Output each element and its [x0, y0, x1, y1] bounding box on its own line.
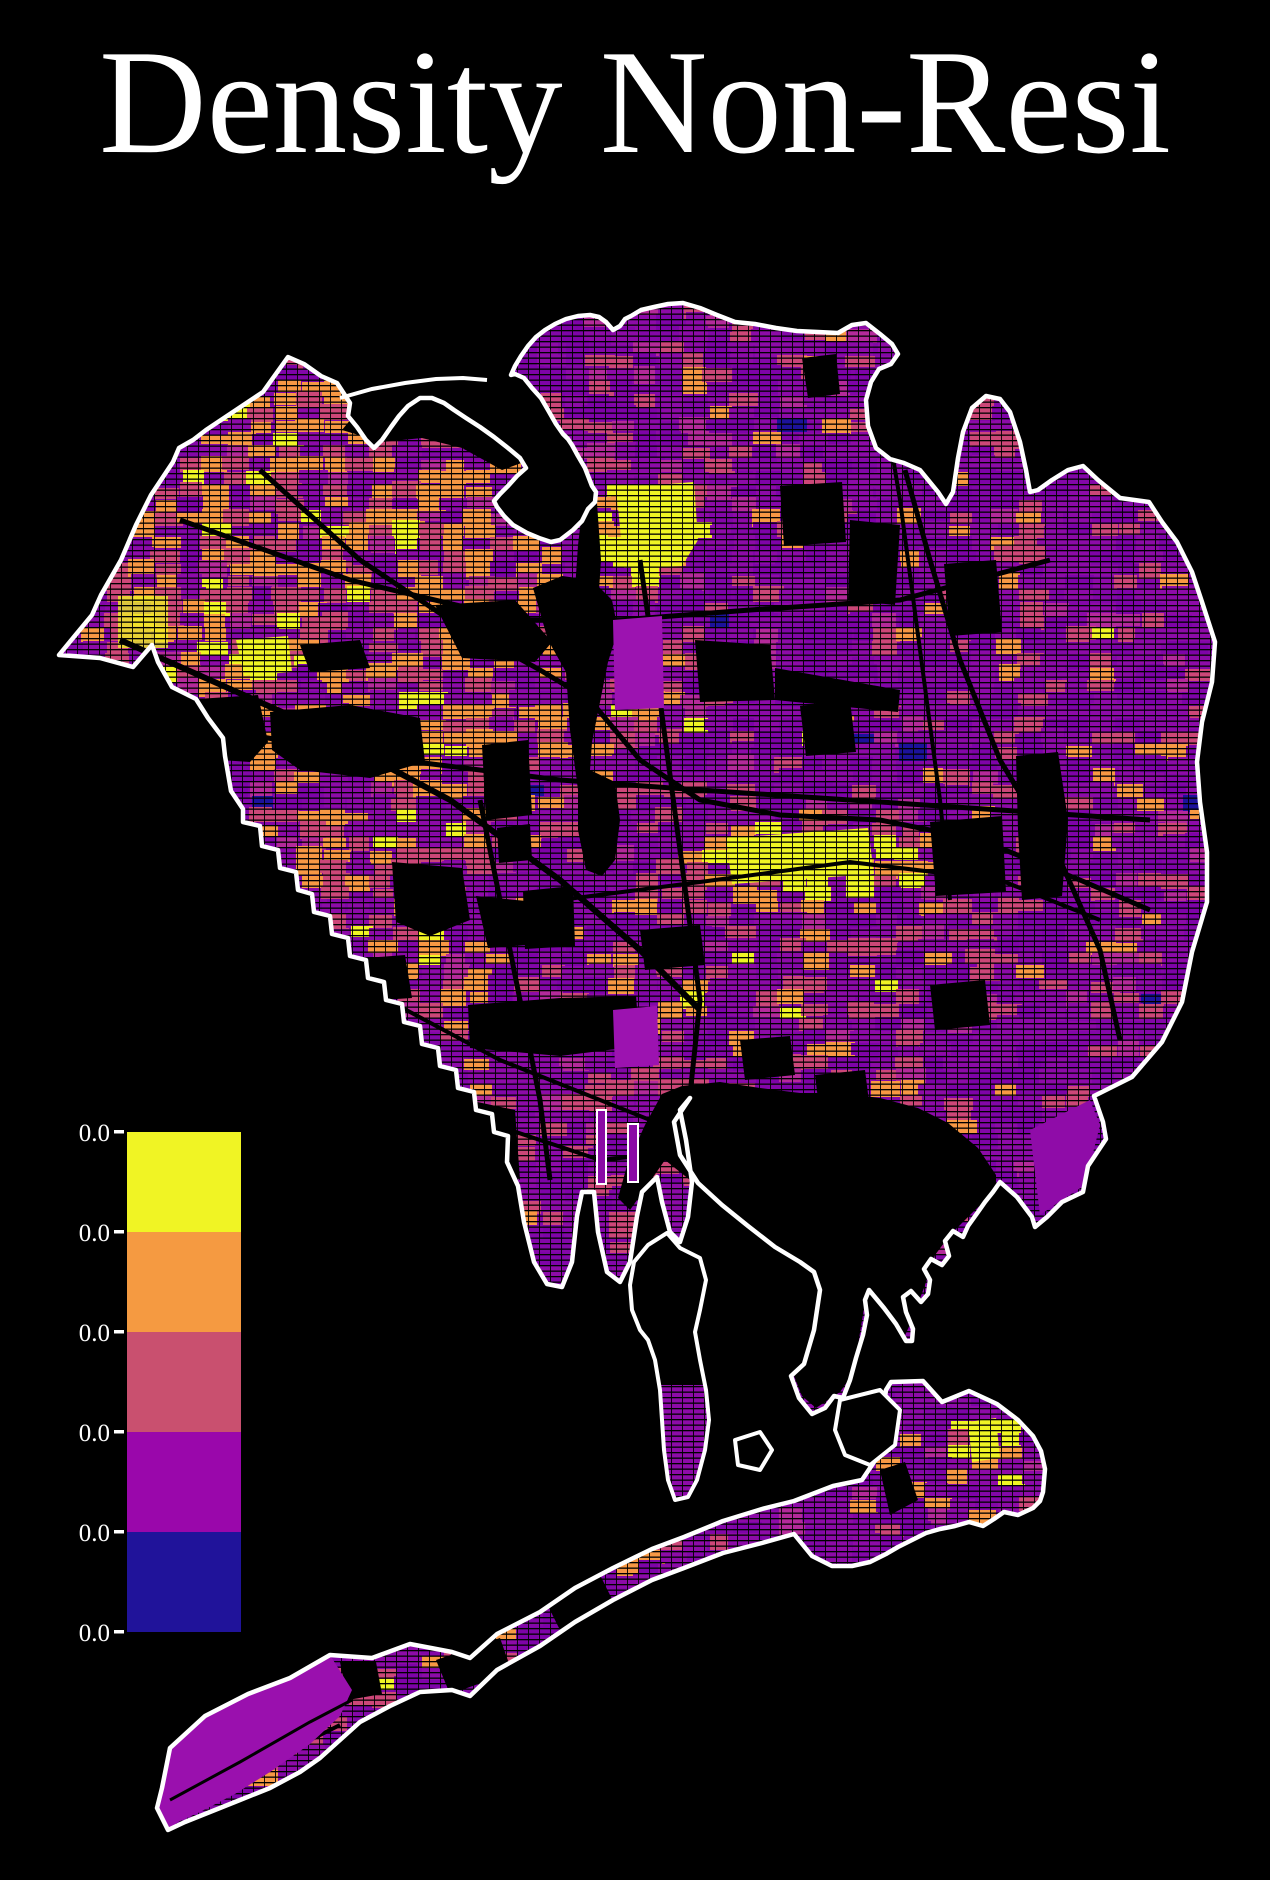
- svg-text:0.0: 0.0: [79, 1220, 110, 1247]
- svg-text:0.0: 0.0: [79, 1520, 110, 1547]
- svg-text:Density Non-Resi: Density Non-Resi: [99, 20, 1171, 185]
- svg-text:0.0: 0.0: [79, 1420, 110, 1447]
- svg-text:0.0: 0.0: [79, 1620, 110, 1647]
- svg-text:0.0: 0.0: [79, 1320, 110, 1347]
- svg-text:0.0: 0.0: [79, 1120, 110, 1147]
